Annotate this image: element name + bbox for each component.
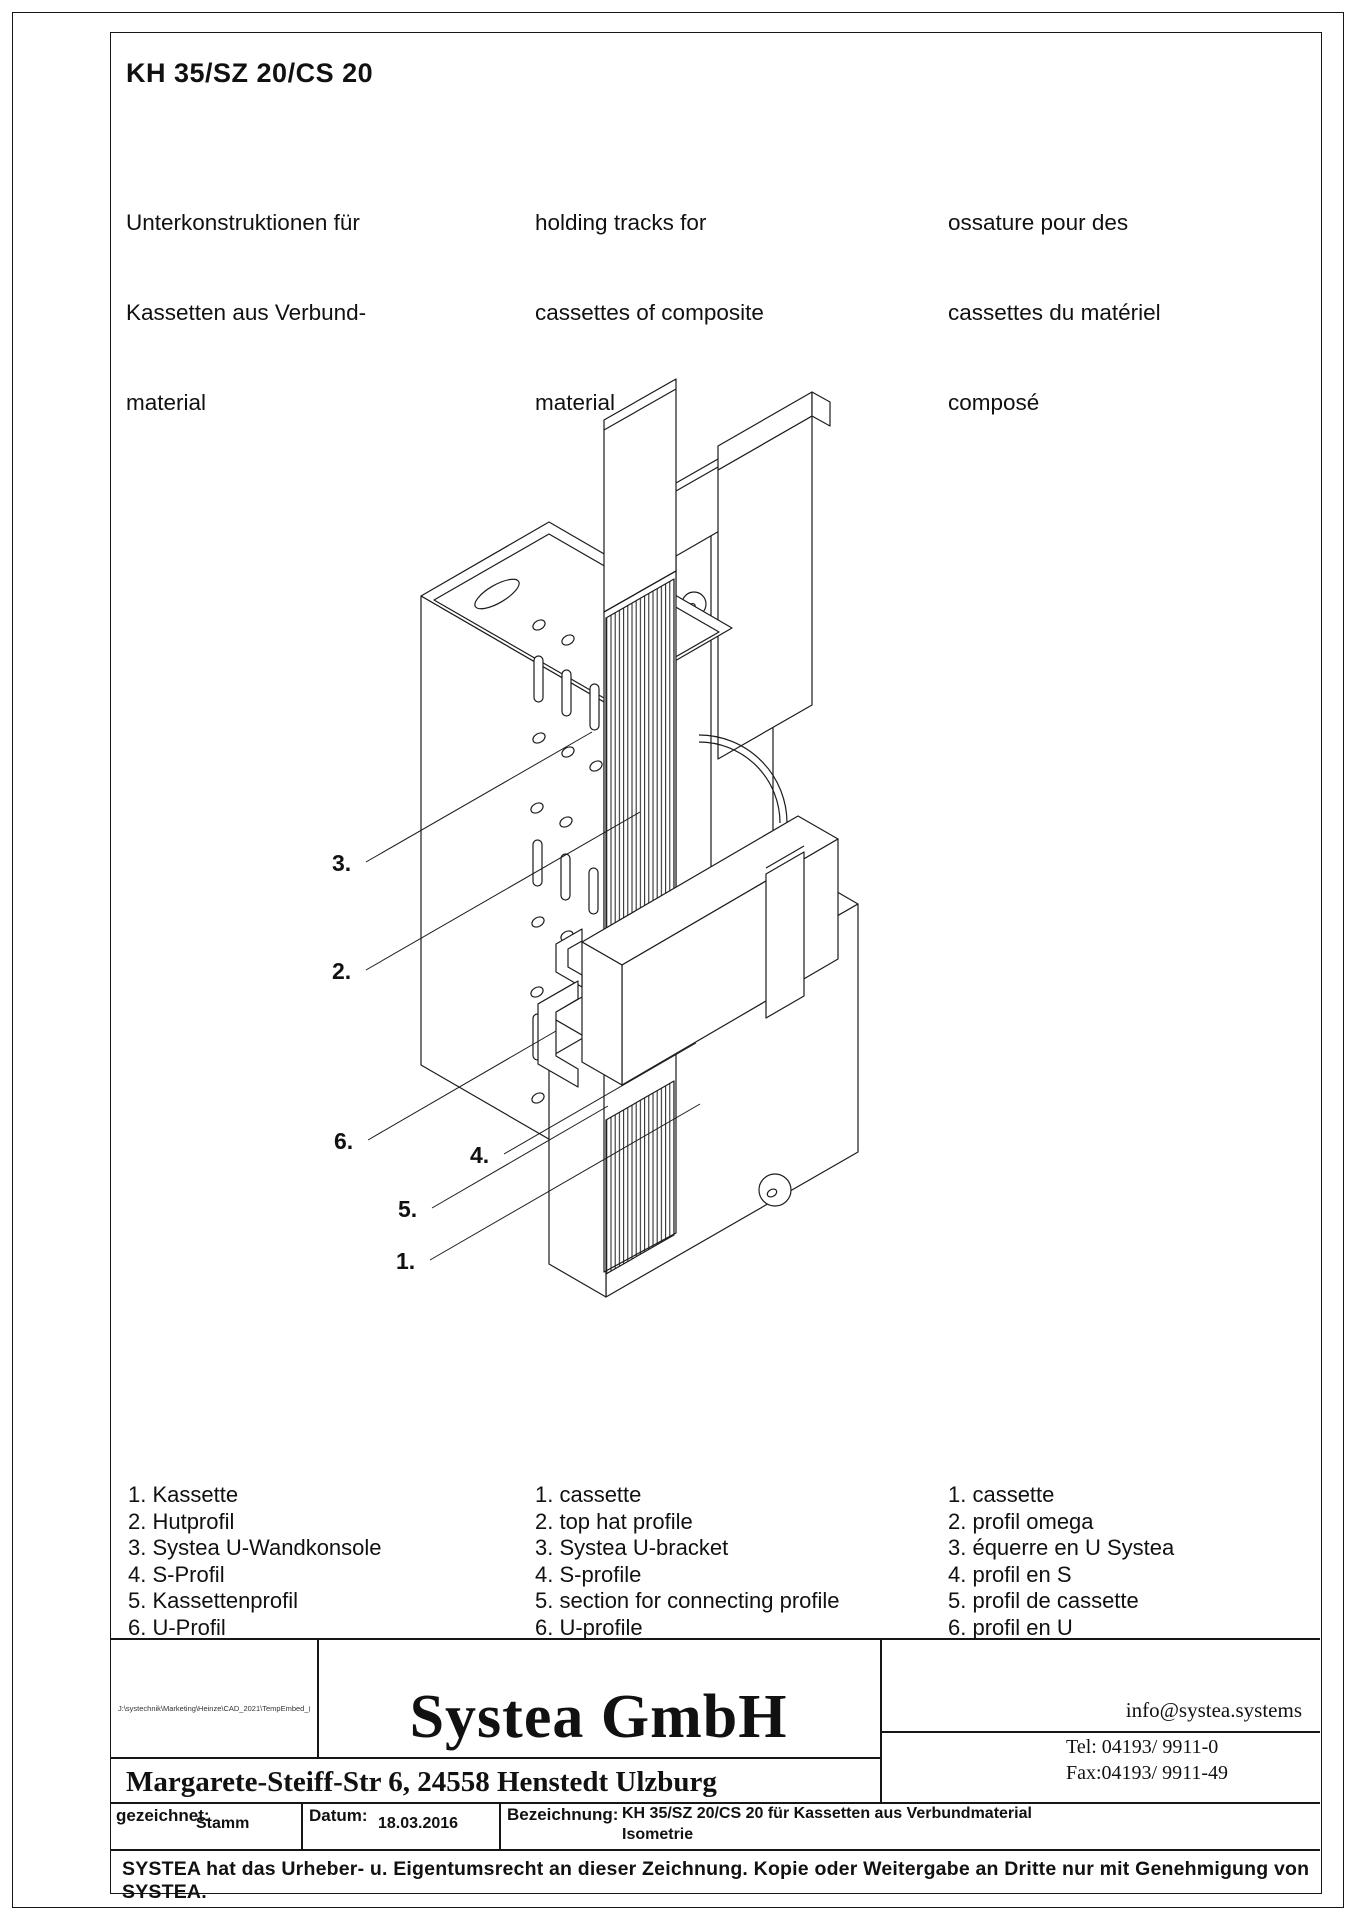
- part-label-4: 4.: [470, 1142, 489, 1169]
- legend-item: 3. équerre en U Systea: [948, 1535, 1174, 1562]
- legend-item: 4. profil en S: [948, 1562, 1174, 1589]
- titleblock-divider: [499, 1802, 501, 1849]
- titleblock-divider: [110, 1849, 1320, 1851]
- legend-item: 3. Systea U-bracket: [535, 1535, 840, 1562]
- drawing-sheet: KH 35/SZ 20/CS 20 Unterkonstruktionen fü…: [0, 0, 1358, 1920]
- designation-label: Bezeichnung:: [507, 1805, 618, 1825]
- legend-item: 5. Kassettenprofil: [128, 1588, 382, 1615]
- legend-item: 1. cassette: [535, 1482, 840, 1509]
- titleblock-divider: [110, 1802, 1320, 1804]
- cassette-profile-drawing: [766, 846, 804, 1018]
- file-path-note: J:\systechnik\Marketing\Heinze\CAD_2021\…: [118, 1704, 310, 1713]
- part-label-3: 3.: [332, 850, 351, 877]
- legend-item: 2. Hutprofil: [128, 1509, 382, 1536]
- part-label-1: 1.: [396, 1248, 415, 1275]
- legend-item: 5. profil de cassette: [948, 1588, 1174, 1615]
- titleblock-divider: [301, 1802, 303, 1849]
- drawn-by-value: Stamm: [196, 1815, 249, 1833]
- legend-english: 1. cassette 2. top hat profile 3. Systea…: [535, 1482, 840, 1641]
- titleblock-divider: [880, 1731, 1320, 1733]
- legend-item: 4. S-Profil: [128, 1562, 382, 1589]
- legend-item: 2. top hat profile: [535, 1509, 840, 1536]
- titleblock-divider: [110, 1757, 880, 1759]
- legend-item: 4. S-profile: [535, 1562, 840, 1589]
- copyright-notice: SYSTEA hat das Urheber- u. Eigentumsrech…: [122, 1858, 1358, 1904]
- designation-value-line2: Isometrie: [622, 1826, 693, 1844]
- part-label-6: 6.: [334, 1128, 353, 1155]
- legend-item: 1. cassette: [948, 1482, 1174, 1509]
- date-value: 18.03.2016: [378, 1815, 458, 1833]
- company-name: Systea GmbH: [317, 1682, 880, 1753]
- titleblock-divider: [110, 1638, 1320, 1640]
- legend-german: 1. Kassette 2. Hutprofil 3. Systea U-Wan…: [128, 1482, 382, 1641]
- company-fax: Fax:04193/ 9911-49: [1066, 1762, 1228, 1785]
- designation-value-line1: KH 35/SZ 20/CS 20 für Kassetten aus Verb…: [622, 1805, 1032, 1823]
- company-email: info@systea.systems: [880, 1698, 1302, 1723]
- legend-item: 2. profil omega: [948, 1509, 1174, 1536]
- legend-item: 3. Systea U-Wandkonsole: [128, 1535, 382, 1562]
- legend-item: 5. section for connecting profile: [535, 1588, 840, 1615]
- part-label-2: 2.: [332, 958, 351, 985]
- company-phone: Tel: 04193/ 9911-0: [1066, 1736, 1218, 1759]
- part-label-5: 5.: [398, 1196, 417, 1223]
- company-address: Margarete-Steiff-Str 6, 24558 Henstedt U…: [126, 1766, 717, 1799]
- legend-french: 1. cassette 2. profil omega 3. équerre e…: [948, 1482, 1174, 1641]
- date-label: Datum:: [309, 1806, 368, 1826]
- legend-item: 1. Kassette: [128, 1482, 382, 1509]
